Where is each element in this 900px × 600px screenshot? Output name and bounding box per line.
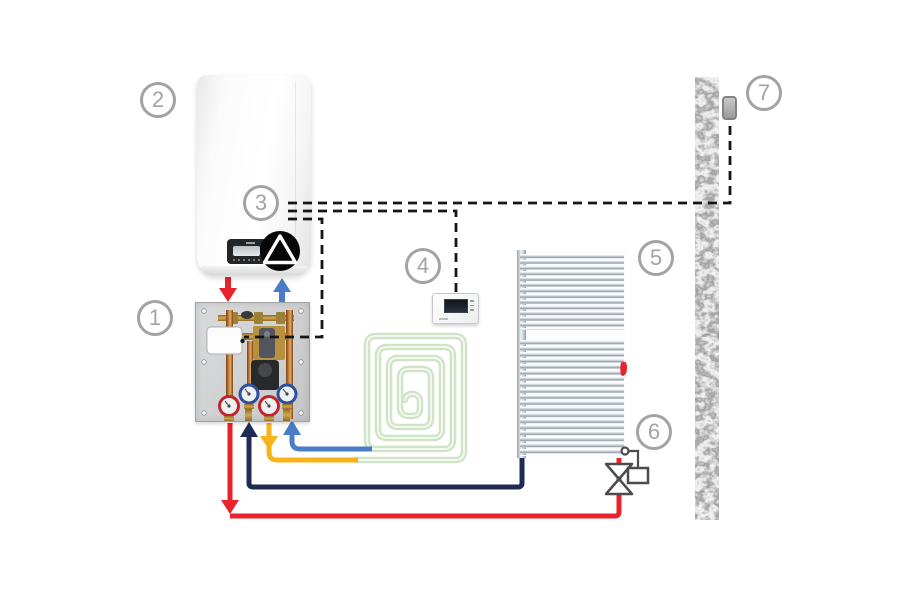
zone-valve-actuator [628, 468, 648, 483]
label-3-wiring: 3 [243, 185, 279, 221]
label-3-number: 3 [255, 190, 267, 216]
label-7-sensor: 7 [746, 75, 782, 111]
label-1-manifold: 1 [137, 300, 173, 336]
label-4-thermostat: 4 [405, 248, 441, 284]
zone-valve [606, 448, 648, 495]
label-4-number: 4 [417, 253, 429, 279]
label-7-number: 7 [758, 80, 770, 106]
heating-system-diagram: 1 2 3 4 5 6 7 [0, 0, 900, 600]
label-5-number: 5 [650, 245, 662, 271]
label-1-number: 1 [149, 305, 161, 331]
wire-boiler-to-manifold [244, 219, 322, 337]
label-2-number: 2 [152, 87, 164, 113]
label-6-valve: 6 [636, 414, 672, 450]
label-2-boiler: 2 [140, 82, 176, 118]
wire-boiler-to-outdoor-sensor [288, 121, 730, 203]
zone-valve-pin [622, 448, 629, 455]
label-6-number: 6 [648, 419, 660, 445]
label-5-radiator: 5 [638, 240, 674, 276]
